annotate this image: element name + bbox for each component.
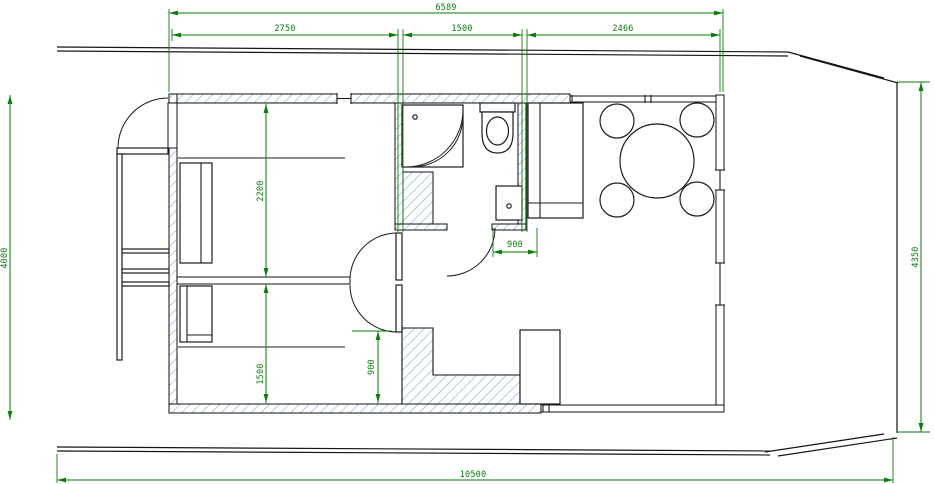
gangway-step-3 xyxy=(122,282,169,286)
dim-label-section-right: 2466 xyxy=(612,24,633,34)
floor-plan-drawing: 6589 2750 1500 2466 4000 4350 xyxy=(0,0,935,484)
toilet-bowl-inner xyxy=(487,117,509,145)
bathroom xyxy=(395,103,526,276)
dim-label-kitchen: 900 xyxy=(367,359,377,375)
dim-label-height-right: 4350 xyxy=(911,246,921,267)
wall-bottom-insulated xyxy=(169,404,541,413)
kitchen xyxy=(402,328,560,404)
gangway-step-1 xyxy=(122,249,169,253)
dim-height-right: 4350 xyxy=(897,82,930,432)
bathroom-wall-bottom-right xyxy=(492,224,526,230)
dim-height-left: 4000 xyxy=(0,95,10,420)
dim-bedroom-lower: 1500 xyxy=(256,284,266,403)
bedroom-door-swing-lower xyxy=(350,285,397,332)
bow-taper-top-b xyxy=(800,56,898,83)
boarding-plank xyxy=(117,154,122,360)
dim-label-section-left: 2750 xyxy=(274,24,295,34)
dim-label-overall-top: 6589 xyxy=(435,3,456,13)
dim-label-bedroom-upper: 2200 xyxy=(256,180,266,201)
dim-label-overall-bottom: 10500 xyxy=(460,470,487,480)
gangway-step-2 xyxy=(122,269,169,273)
dim-label-section-middle: 1500 xyxy=(451,24,472,34)
bow-taper-top-a xyxy=(788,52,884,78)
bathroom-door-swing xyxy=(447,228,495,276)
dim-label-height-left: 4000 xyxy=(0,247,10,268)
bedroom-door-leaf-upper xyxy=(396,233,402,280)
entry-door-swing-arc xyxy=(118,98,168,148)
entry-door-leaf xyxy=(117,148,168,154)
chair-bottom-left xyxy=(600,183,634,217)
entry xyxy=(117,98,169,360)
dining-table xyxy=(620,124,694,198)
dim-kitchen: 900 xyxy=(352,331,392,403)
bed-upper-pillow xyxy=(180,163,212,263)
washbasin-drain xyxy=(507,204,511,208)
wall-right xyxy=(716,95,724,411)
entry-door-jamb xyxy=(168,103,177,148)
chair-top-left xyxy=(600,104,634,138)
bedroom-door-swing-upper xyxy=(350,233,397,280)
shower-floor-hatch xyxy=(403,172,433,224)
bedrooms xyxy=(178,158,402,347)
deck-edge-bottom-outer xyxy=(57,447,770,451)
wall-bedroom-divider xyxy=(177,277,350,284)
dim-overall-bottom: 10500 xyxy=(57,437,893,483)
dim-label-bathroom: 900 xyxy=(507,240,523,250)
bed-lower-pillow xyxy=(180,286,212,342)
kitchen-appliance-block xyxy=(520,330,560,404)
shower-tray xyxy=(402,105,463,167)
dim-bathroom: 900 xyxy=(493,228,537,257)
washbasin xyxy=(496,186,522,220)
living-area xyxy=(528,103,714,218)
sofa-bench xyxy=(528,103,583,218)
wall-bottom-living xyxy=(541,405,724,412)
chair-top-right xyxy=(680,103,714,137)
wall-top-insulated xyxy=(169,94,570,103)
toilet-cistern xyxy=(480,103,515,112)
deck-edge-bottom-inner xyxy=(57,451,770,455)
dim-overall-top: 6589 xyxy=(169,3,723,92)
wall-top-living xyxy=(570,96,724,102)
dim-bedroom-upper: 2200 xyxy=(256,104,266,277)
dim-label-bedroom-lower: 1500 xyxy=(256,363,266,384)
floor-plan-sheet: 6589 2750 1500 2466 4000 4350 xyxy=(0,0,935,484)
chair-bottom-right xyxy=(680,182,714,216)
bedroom-door-leaf-lower xyxy=(396,285,402,332)
kitchen-counter-l-shape xyxy=(402,328,520,404)
shower-drain xyxy=(413,115,417,119)
